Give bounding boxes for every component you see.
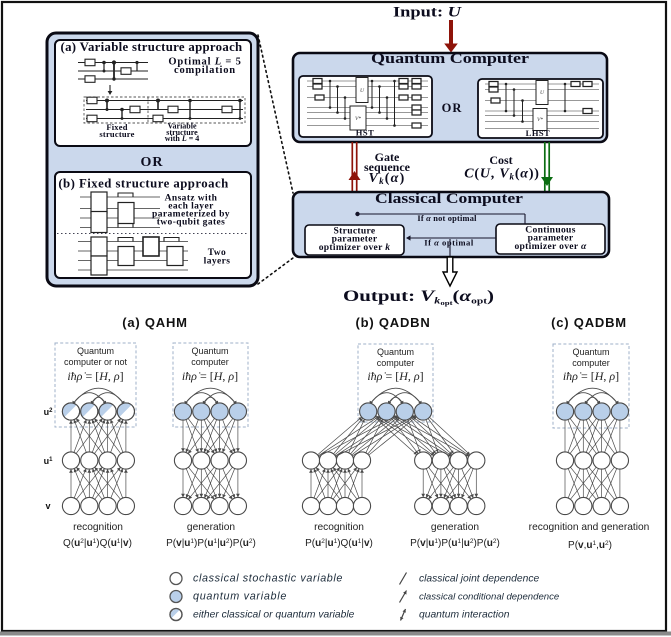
svg-text:with L = 4: with L = 4 xyxy=(165,134,200,143)
svg-text:two-qubit gates: two-qubit gates xyxy=(157,218,226,228)
svg-text:classical joint dependence: classical joint dependence xyxy=(419,574,539,585)
svg-text:computer or not: computer or not xyxy=(64,357,128,367)
svg-text:recognition: recognition xyxy=(73,522,123,533)
svg-text:If α optimal: If α optimal xyxy=(424,238,474,248)
svg-text:P(u2​|u1​)Q(u1​|v): P(u2​|u1​)Q(u1​|v) xyxy=(305,538,373,549)
svg-text:optimizer over α: optimizer over α xyxy=(514,241,586,252)
svg-text:computer: computer xyxy=(572,358,610,368)
svg-text:compilation: compilation xyxy=(174,65,236,76)
svg-text:Quantum: Quantum xyxy=(77,346,114,356)
svg-text:(b) QADBN: (b) QADBN xyxy=(355,315,430,330)
svg-text:layers: layers xyxy=(204,257,231,267)
svg-text:HST: HST xyxy=(356,128,375,138)
svg-text:LHST: LHST xyxy=(526,128,551,138)
svg-text:(c) QADBM: (c) QADBM xyxy=(551,315,627,330)
svg-text:If α not optimal: If α not optimal xyxy=(417,214,477,223)
svg-text:Quantum: Quantum xyxy=(572,347,609,357)
svg-text:V*: V* xyxy=(537,117,543,123)
svg-text:(a) Variable structure approac: (a) Variable structure approach xyxy=(61,40,243,54)
svg-text:Quantum: Quantum xyxy=(191,346,228,356)
svg-text:(b) Fixed structure approach: (b) Fixed structure approach xyxy=(58,177,228,191)
svg-text:Vk(α): Vk(α) xyxy=(369,171,406,186)
svg-text:iħρ̇ = [H, ρ]: iħρ̇ = [H, ρ] xyxy=(182,369,238,383)
svg-text:either classical or quantum va: either classical or quantum variable xyxy=(193,610,355,621)
svg-text:classical conditional dependen: classical conditional dependence xyxy=(419,592,559,603)
svg-text:v: v xyxy=(45,501,50,511)
svg-text:V*: V* xyxy=(355,116,361,122)
svg-text:P(v|u1​)P(u1​|u2​)P(u2​): P(v|u1​)P(u1​|u2​)P(u2​) xyxy=(166,538,256,549)
svg-text:computer: computer xyxy=(191,357,229,367)
svg-text:Cost: Cost xyxy=(489,153,512,167)
svg-text:quantum variable: quantum variable xyxy=(193,591,287,603)
svg-text:iħρ̇ = [H, ρ]: iħρ̇ = [H, ρ] xyxy=(563,369,619,383)
svg-text:recognition and generation: recognition and generation xyxy=(529,522,650,533)
svg-text:structure: structure xyxy=(99,129,134,139)
svg-text:classical stochastic variable: classical stochastic variable xyxy=(193,573,343,585)
svg-text:optimizer over k: optimizer over k xyxy=(319,242,391,253)
svg-text:(a) QAHM: (a) QAHM xyxy=(122,315,188,330)
svg-text:iħρ̇ = [H, ρ]: iħρ̇ = [H, ρ] xyxy=(67,369,123,383)
svg-text:iħρ̇ = [H, ρ]: iħρ̇ = [H, ρ] xyxy=(367,369,423,383)
svg-text:P(v|u1​)P(u1​|u2​)P(u2​): P(v|u1​)P(u1​|u2​)P(u2​) xyxy=(410,538,500,549)
svg-text:Quantum: Quantum xyxy=(377,347,414,357)
svg-text:Classical Computer: Classical Computer xyxy=(375,191,524,207)
svg-text:OR: OR xyxy=(141,155,164,170)
svg-text:Q(u2​|u1​)Q(u1​|v): Q(u2​|u1​)Q(u1​|v) xyxy=(63,538,132,549)
svg-text:generation: generation xyxy=(431,522,479,533)
svg-text:C(U, Vk(α)): C(U, Vk(α)) xyxy=(464,167,540,182)
svg-text:Input: U: Input: U xyxy=(393,4,463,20)
svg-text:quantum interaction: quantum interaction xyxy=(419,610,510,621)
svg-text:Quantum Computer: Quantum Computer xyxy=(371,51,530,67)
svg-text:computer: computer xyxy=(377,358,415,368)
svg-text:generation: generation xyxy=(187,522,235,533)
svg-text:recognition: recognition xyxy=(314,522,364,533)
svg-text:OR: OR xyxy=(442,101,463,115)
